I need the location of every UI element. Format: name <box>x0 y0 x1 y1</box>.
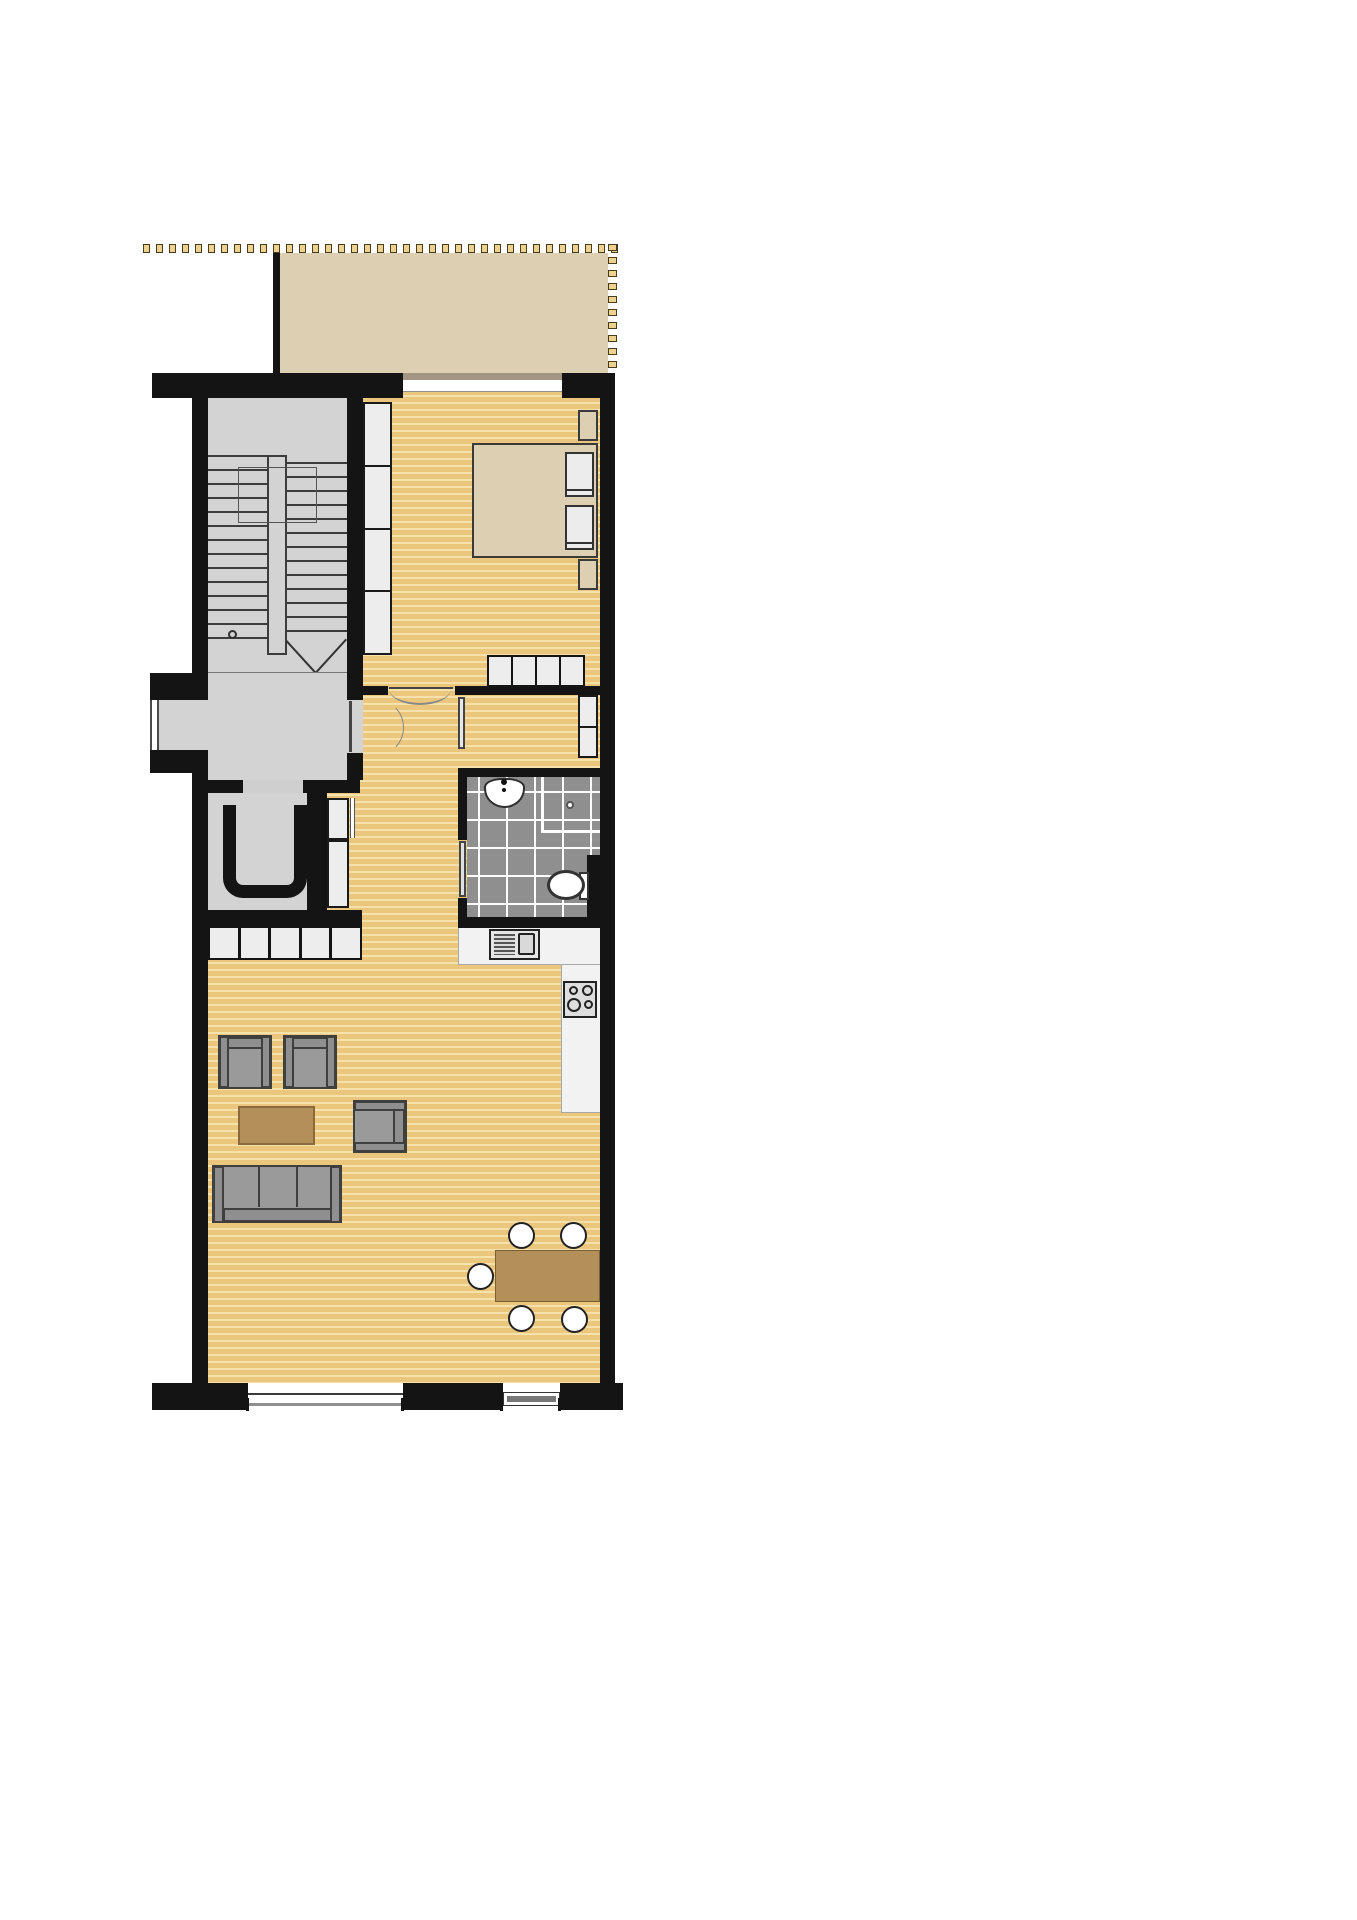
window-tick <box>558 1398 561 1411</box>
shower-divider-horizontal <box>541 830 600 833</box>
balcony-railing-right <box>608 244 617 372</box>
wardrobe-panel <box>365 467 390 528</box>
sink-drainer <box>494 934 515 955</box>
bottom-wall-right <box>560 1383 623 1410</box>
balcony-sliding-door-glass <box>403 380 562 392</box>
sink-tap-dot <box>502 788 506 792</box>
hob-burner <box>569 986 578 995</box>
hob-burner <box>584 1000 593 1009</box>
window-tick <box>246 1398 249 1411</box>
balcony-sliding-door-track <box>403 373 562 380</box>
sink-tap <box>501 779 507 785</box>
kitchen-hob <box>563 981 597 1018</box>
entrance-hall-floor <box>208 673 347 780</box>
sofa-arm-left <box>213 1166 224 1223</box>
sink-basin <box>518 933 535 955</box>
window-door-panel <box>507 1396 556 1402</box>
window-tick <box>500 1398 503 1411</box>
hob-burner <box>582 985 593 996</box>
sofa-cushion <box>298 1167 333 1207</box>
sofa-cushion <box>260 1167 297 1207</box>
dressing-door-leaf <box>458 697 465 749</box>
sideboard-panel <box>241 928 269 958</box>
shower-drain <box>566 801 574 809</box>
dining-chair-bottom-2 <box>561 1306 588 1333</box>
armchair-arm-left <box>219 1036 229 1088</box>
wardrobe-panel <box>365 592 390 653</box>
sideboard-panel <box>210 928 238 958</box>
armchair-arm-left <box>284 1036 294 1088</box>
right-wall <box>600 373 615 1410</box>
hall-cabinet-panel-2 <box>327 840 349 908</box>
toilet-bowl <box>547 870 585 900</box>
dining-chair-top-1 <box>508 1222 535 1249</box>
stair-landing-outline <box>238 467 317 523</box>
low-cabinet-panel <box>537 657 559 685</box>
elevator-wall-stub-right <box>303 780 360 793</box>
hall-cabinet-door-line <box>350 798 355 838</box>
sofa-cushion <box>223 1167 260 1207</box>
bedroom-bottom-wall-right <box>455 686 600 695</box>
coffee-table <box>238 1106 315 1145</box>
side-armchair-arm-top <box>354 1101 406 1111</box>
balcony-left-wall <box>273 253 280 373</box>
dining-chair-left <box>467 1263 494 1290</box>
sofa <box>212 1165 342 1223</box>
left-wall <box>192 398 208 1383</box>
window-glazing-line <box>248 1403 403 1406</box>
floor-plan-canvas <box>0 0 1357 1920</box>
elevator-door-opening <box>243 780 303 793</box>
low-cabinet-panel <box>489 657 511 685</box>
wardrobe-panel <box>365 404 390 465</box>
entrance-door-recess <box>158 700 208 750</box>
window-door-small <box>503 1392 560 1406</box>
balcony-railing-top <box>143 244 620 253</box>
sofa-back <box>223 1208 333 1222</box>
dividing-wall-lower <box>347 753 363 780</box>
dining-table <box>495 1250 600 1302</box>
bathroom-door-leaf <box>459 841 466 897</box>
top-wall <box>152 373 403 398</box>
armchair-arm-right <box>326 1036 336 1088</box>
bathroom-bottom-wall <box>458 917 603 928</box>
sofa-arm-right <box>330 1166 341 1223</box>
bathroom-top-wall <box>458 768 603 777</box>
bedroom-wardrobe <box>363 402 392 655</box>
sideboard-panel <box>271 928 299 958</box>
nightstand-lower <box>578 559 598 590</box>
entrance-wall-stub-upper <box>150 673 208 700</box>
sofa-cushions <box>223 1167 333 1207</box>
bathroom-left-wall-upper <box>458 777 467 840</box>
pillow-fold-line <box>567 489 592 491</box>
pillow-fold-line <box>567 542 592 544</box>
window-large <box>248 1393 403 1406</box>
side-armchair <box>353 1100 407 1153</box>
apartment-door-swing-arc <box>352 700 404 755</box>
elevator-car-symbol <box>223 805 307 898</box>
stair-newel-marker <box>228 630 237 639</box>
armchair-2 <box>283 1035 337 1089</box>
dressing-wardrobe-panel <box>580 697 596 726</box>
bottom-wall-middle <box>403 1383 503 1410</box>
sideboard-panels <box>210 928 360 958</box>
hob-burner <box>567 998 581 1012</box>
bedroom-low-cabinet-row <box>487 655 585 687</box>
dressing-wardrobe <box>578 695 598 758</box>
entrance-wall-stub-lower <box>150 750 208 773</box>
low-cabinet-panel <box>561 657 583 685</box>
armchair-back <box>291 1037 329 1049</box>
hall-cabinet-panel-1 <box>327 798 349 840</box>
nightstand-upper <box>578 410 598 441</box>
side-armchair-arm-bottom <box>354 1142 406 1152</box>
bed <box>472 443 598 558</box>
dividing-wall-upper <box>347 398 363 700</box>
elevator-wall-stub-left <box>192 780 243 793</box>
bedroom-bottom-wall-left <box>363 686 388 695</box>
armchair-back <box>226 1037 264 1049</box>
side-armchair-back <box>393 1107 405 1147</box>
dining-chair-bottom-1 <box>508 1305 535 1332</box>
window-tick <box>401 1398 404 1411</box>
dressing-wardrobe-panel <box>580 728 596 757</box>
balcony-floor <box>280 253 608 373</box>
shower-divider-vertical <box>541 777 544 833</box>
armchair-1 <box>218 1035 272 1089</box>
sideboard-panel <box>302 928 330 958</box>
sideboard-panel <box>332 928 360 958</box>
building-entrance-door <box>150 700 159 750</box>
wardrobe-panel <box>365 530 390 591</box>
bed-pillow-1 <box>565 452 594 497</box>
low-cabinet-panel <box>513 657 535 685</box>
sideboard-row <box>208 910 362 960</box>
armchair-arm-right <box>261 1036 271 1088</box>
bottom-wall-left <box>152 1383 248 1410</box>
elevator-right-wall <box>307 793 327 928</box>
dining-chair-top-2 <box>560 1222 587 1249</box>
bed-pillow-2 <box>565 505 594 550</box>
kitchen-sink-unit <box>489 929 540 960</box>
